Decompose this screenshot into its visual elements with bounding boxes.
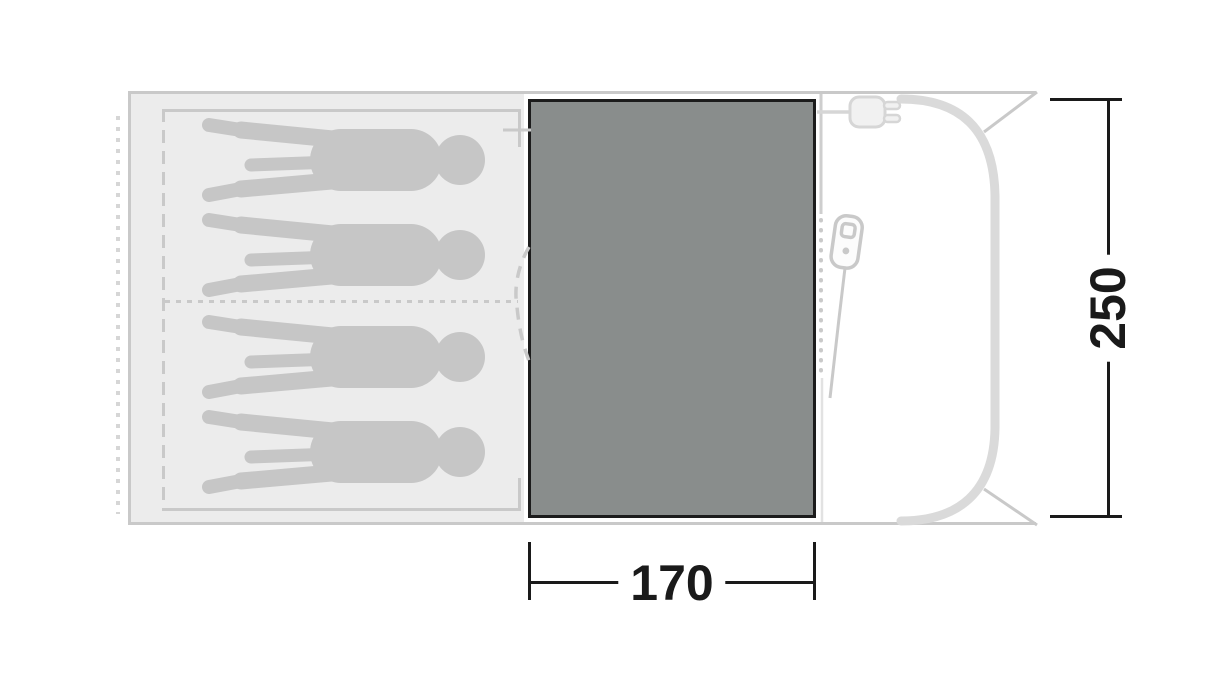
dimension-width: 170 [528,542,816,600]
cabin-dashed-wall [162,109,165,511]
fixed-groundsheet [528,99,816,518]
cabin-divider-dotted [165,300,518,303]
guy-line-bottom [984,489,1037,525]
tent-floorplan-diagram: 170 250 [0,0,1230,692]
dimension-depth-label: 250 [1083,254,1133,361]
dimension-tick [1050,515,1122,518]
zipper-pull-icon [830,214,864,398]
dimension-depth: 250 [1050,98,1122,518]
dimension-tick [528,542,531,600]
dimension-tick [1050,98,1122,101]
dimension-tick [813,542,816,600]
awning-rail-dotted-edge [116,116,120,514]
tent-pole-arc [901,99,995,521]
cabin-door-edge-top [518,109,521,147]
inner-tent-cabin [162,109,521,511]
guy-line-top [984,92,1037,132]
cabin-door-edge-bottom [518,478,521,511]
dimension-width-label: 170 [618,558,725,608]
power-plug-icon [817,97,900,127]
